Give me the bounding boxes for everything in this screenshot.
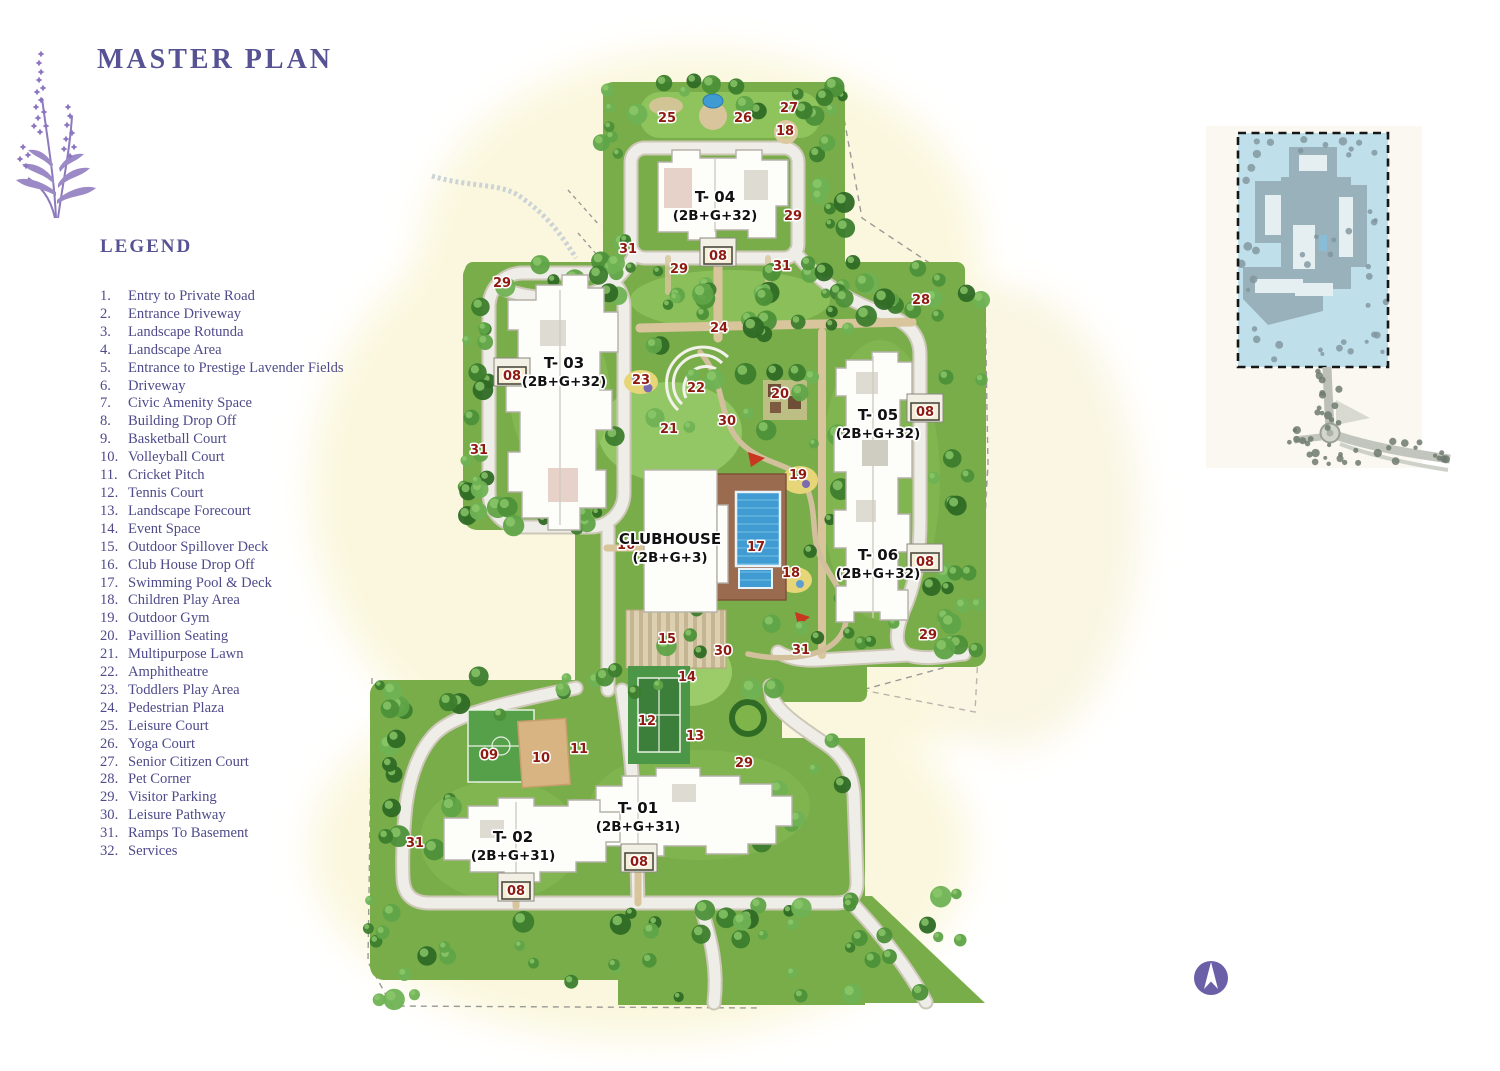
tree (613, 148, 624, 159)
north-arrow-icon (1194, 961, 1228, 995)
tree-highlight (765, 265, 773, 273)
tree-highlight (481, 472, 488, 479)
tree-highlight (671, 294, 676, 299)
tree (608, 959, 620, 971)
tree-highlight (473, 477, 477, 481)
tree-highlight (593, 509, 598, 514)
tree-highlight (963, 470, 969, 476)
tree-highlight (472, 504, 480, 512)
tree-highlight (530, 959, 535, 964)
tree (643, 923, 659, 939)
tree-highlight (844, 986, 853, 995)
tree-highlight (960, 286, 968, 294)
map-marker-19: 19 (789, 468, 807, 483)
map-marker-31: 31 (773, 259, 791, 274)
tree (696, 307, 709, 320)
legend-item: 8.Building Drop Off (100, 413, 400, 431)
map-marker-08: 08 (916, 405, 934, 420)
label-T-06: T- 06 (858, 546, 898, 564)
tree (742, 408, 753, 419)
tree (961, 565, 977, 581)
tree-highlight (813, 179, 822, 188)
tree (373, 993, 386, 1006)
tree (791, 898, 812, 919)
tree (954, 934, 967, 947)
tree (864, 952, 880, 968)
tree-highlight (957, 599, 964, 606)
tree-highlight (612, 916, 622, 926)
tree (589, 266, 608, 285)
inset-road-tree (1319, 390, 1325, 396)
legend-item: 32.Services (100, 843, 400, 861)
tree-highlight (792, 813, 799, 820)
tree (910, 260, 927, 277)
tree (733, 912, 751, 930)
tree-highlight (444, 799, 453, 808)
tree (825, 219, 835, 229)
tree-highlight (858, 275, 866, 283)
tree-highlight (833, 480, 843, 490)
label-spec: (2B+G+31) (596, 819, 681, 835)
tree-highlight (730, 80, 737, 87)
tree (826, 104, 837, 115)
inset-tree (1304, 261, 1311, 268)
tree-highlight (680, 87, 685, 92)
tree (608, 663, 622, 677)
inset-road-tree (1308, 436, 1314, 442)
legend-item: 21.Multipurpose Lawn (100, 646, 400, 664)
tree (846, 255, 861, 270)
inset-road-tree (1307, 452, 1313, 458)
legend-item: 22.Amphitheatre (100, 664, 400, 682)
tree (955, 598, 970, 613)
tree (628, 685, 642, 699)
tree (794, 989, 807, 1002)
tree (605, 103, 615, 113)
tree (809, 764, 820, 775)
tree-highlight (500, 499, 509, 508)
tree-highlight (473, 300, 481, 308)
tree (922, 577, 941, 596)
tree-highlight (371, 936, 377, 942)
tree-highlight (933, 888, 943, 898)
inset-tree (1253, 150, 1261, 158)
legend-item: 17.Swimming Pool & Deck (100, 575, 400, 593)
tree-highlight (610, 664, 616, 670)
tree (811, 189, 827, 205)
inset-tree (1271, 356, 1277, 362)
tree-highlight (846, 943, 851, 948)
inset-tree (1250, 275, 1258, 283)
tree (843, 898, 856, 911)
tree (441, 797, 462, 818)
tree-highlight (420, 948, 429, 957)
tree-highlight (807, 371, 813, 377)
tree-highlight (853, 932, 860, 939)
tree-highlight (811, 148, 818, 155)
legend-item: 14.Event Space (100, 521, 400, 539)
map-marker-13: 13 (686, 729, 704, 744)
tree (787, 967, 798, 978)
tree-highlight (810, 765, 815, 770)
tree (686, 369, 699, 382)
label-spec: (2B+G+31) (471, 848, 556, 864)
inset-tree (1300, 252, 1306, 258)
inset-road-tree (1342, 460, 1347, 465)
tree-highlight (817, 264, 825, 272)
tree-highlight (821, 136, 829, 144)
tree-highlight (364, 924, 369, 929)
tree (656, 75, 673, 92)
map-marker-15: 15 (658, 632, 676, 647)
tree-highlight (827, 105, 832, 110)
inset-tree (1341, 339, 1347, 345)
tree-highlight (866, 637, 871, 642)
tree (497, 497, 517, 517)
map-marker-31: 31 (470, 443, 488, 458)
inset-tree (1314, 234, 1319, 239)
legend-item: 6.Driveway (100, 378, 400, 396)
tree-highlight (685, 630, 691, 636)
tree-highlight (385, 906, 393, 914)
tree (809, 439, 819, 449)
legend-item: 15.Outdoor Spillover Deck (100, 539, 400, 557)
map-marker-22: 22 (687, 381, 705, 396)
tree-highlight (936, 640, 946, 650)
tree-highlight (837, 291, 845, 299)
tree-highlight (738, 98, 746, 106)
tree-highlight (977, 375, 983, 381)
label-T-04: T- 04 (695, 188, 735, 206)
inset-road-tree (1374, 449, 1382, 457)
legend-item: 4.Landscape Area (100, 342, 400, 360)
inset-road-tree (1442, 455, 1450, 463)
legend-item: 12.Tennis Court (100, 485, 400, 503)
legend-item: 7.Civic Amenity Space (100, 395, 400, 413)
map-marker-30: 30 (718, 414, 736, 429)
map-marker-08: 08 (507, 884, 525, 899)
tree (694, 900, 715, 921)
inset-tree (1300, 136, 1307, 143)
tree-highlight (557, 683, 563, 689)
legend-item: 19.Outdoor Gym (100, 610, 400, 628)
tree-highlight (934, 933, 939, 938)
tree-highlight (648, 410, 657, 419)
tree (398, 968, 412, 982)
legend-item: 23.Toddlers Play Area (100, 682, 400, 700)
tree (932, 273, 946, 287)
tree (819, 135, 836, 152)
tree-highlight (956, 935, 962, 941)
tree (601, 83, 614, 96)
tree-highlight (949, 498, 958, 507)
label-spec: (2B+G+3) (632, 550, 707, 566)
tree-highlight (471, 668, 480, 677)
tree (472, 476, 482, 486)
map-marker-25: 25 (658, 111, 676, 126)
lavender-sprig-icon (10, 36, 102, 226)
inset-tree (1327, 251, 1333, 257)
tree (409, 989, 420, 1000)
tree (919, 917, 936, 934)
tree-highlight (627, 263, 632, 268)
inset-tree (1267, 139, 1274, 146)
tree-highlight (785, 906, 790, 911)
map-marker-29: 29 (784, 209, 802, 224)
inset-road-tree (1413, 446, 1417, 450)
tree (494, 708, 507, 721)
map-marker-11: 11 (570, 742, 588, 757)
tree (468, 363, 486, 381)
tree-highlight (506, 517, 516, 527)
tree (606, 131, 618, 143)
tree (473, 380, 494, 401)
tree-highlight (759, 931, 763, 935)
tree (439, 693, 457, 711)
label-spec: (2B+G+32) (836, 426, 921, 442)
inset-tree (1366, 303, 1371, 308)
tree-highlight (933, 311, 938, 316)
tree (512, 911, 534, 933)
tree-highlight (934, 274, 940, 280)
map-marker-30: 30 (714, 644, 732, 659)
tree-highlight (654, 267, 659, 272)
inset-tree (1331, 237, 1336, 242)
tree-highlight (594, 253, 603, 262)
tree-highlight (929, 473, 935, 479)
tree (365, 896, 375, 906)
tree-highlight (627, 909, 632, 914)
legend-item: 1.Entry to Private Road (100, 288, 400, 306)
inset-road-tree (1386, 445, 1391, 450)
tree (592, 508, 602, 518)
inset-road-tree (1329, 417, 1334, 422)
tree-highlight (650, 917, 656, 923)
tree-highlight (515, 913, 525, 923)
map-marker-26: 26 (734, 111, 752, 126)
inset-tree (1365, 340, 1369, 344)
tree-highlight (827, 79, 836, 88)
inset-tree (1323, 142, 1329, 148)
tree (758, 930, 768, 940)
tree-highlight (847, 256, 854, 263)
tree (764, 678, 784, 698)
tree (825, 733, 840, 748)
tree-highlight (765, 616, 773, 624)
tree-highlight (374, 995, 380, 1001)
tree-highlight (607, 132, 612, 137)
map-marker-31: 31 (406, 836, 424, 851)
tree (653, 266, 663, 276)
tree (882, 949, 897, 964)
inset-road-tree (1392, 457, 1400, 465)
tree (787, 918, 799, 930)
legend-item: 13.Landscape Forecourt (100, 503, 400, 521)
label-spec: (2B+G+32) (836, 566, 921, 582)
tree (376, 926, 390, 940)
map-marker-31: 31 (619, 242, 637, 257)
tree-highlight (752, 899, 759, 906)
inset-tree (1336, 345, 1343, 352)
tree (947, 496, 967, 516)
page-title: MASTER PLAN (97, 44, 333, 76)
tree (811, 631, 824, 644)
tree-highlight (766, 680, 775, 689)
tree-highlight (745, 319, 755, 329)
tree-highlight (440, 942, 445, 947)
tree-highlight (836, 194, 845, 203)
tree (626, 104, 647, 125)
tree-highlight (943, 615, 952, 624)
tree-highlight (844, 628, 849, 633)
tree (679, 86, 690, 97)
inset-road-tree (1389, 438, 1396, 445)
tree-highlight (516, 941, 521, 946)
tree-highlight (803, 258, 809, 264)
tree (940, 613, 961, 634)
legend-item: 18.Children Play Area (100, 592, 400, 610)
tree (843, 627, 854, 638)
label-spec: (2B+G+32) (673, 208, 758, 224)
tree (933, 932, 943, 942)
tree (766, 364, 783, 381)
map-marker-17: 17 (747, 540, 765, 555)
tree-highlight (688, 370, 694, 376)
tree (930, 886, 952, 908)
tree (702, 75, 721, 94)
inset-tree (1345, 228, 1352, 235)
tree-highlight (461, 484, 469, 492)
inset-tree (1380, 350, 1384, 354)
tree (788, 364, 806, 382)
map-marker-18: 18 (782, 566, 800, 581)
legend-item: 9.Basketball Court (100, 431, 400, 449)
tree-highlight (974, 293, 982, 301)
tree (424, 839, 446, 861)
tree-highlight (630, 687, 636, 693)
tree (462, 335, 472, 345)
tree-highlight (495, 710, 501, 716)
tree (646, 337, 662, 353)
tree-highlight (399, 969, 405, 975)
map-marker-14: 14 (678, 670, 696, 685)
tree-highlight (464, 336, 469, 341)
tree-highlight (737, 365, 747, 375)
tree-highlight (963, 567, 970, 574)
tree-highlight (876, 290, 886, 300)
inset-road-tree (1436, 456, 1441, 461)
tree-highlight (884, 951, 891, 958)
map-marker-29: 29 (670, 262, 688, 277)
tree-highlight (796, 990, 802, 996)
tree (816, 89, 833, 106)
tree (805, 370, 819, 384)
tree-highlight (533, 257, 542, 266)
tree-highlight (743, 409, 748, 414)
tree (642, 953, 657, 968)
inset-tree (1252, 247, 1260, 255)
tree (842, 323, 854, 335)
legend-list: 1.Entry to Private Road2.Entrance Drivew… (100, 288, 400, 861)
tree-highlight (386, 991, 396, 1001)
legend-item: 31.Ramps To Basement (100, 825, 400, 843)
tree (464, 410, 480, 426)
tree-highlight (836, 778, 844, 786)
tree-highlight (479, 323, 484, 328)
tree (530, 255, 549, 274)
inset-road-tree (1299, 437, 1306, 444)
tree (928, 472, 940, 484)
inset-road-tree (1355, 460, 1361, 466)
tree (971, 598, 984, 611)
tree-highlight (605, 123, 610, 128)
tree-highlight (609, 256, 617, 264)
tree (794, 621, 808, 635)
tree (792, 88, 804, 100)
map-marker-21: 21 (660, 422, 678, 437)
tree (417, 946, 436, 965)
tree (383, 989, 404, 1010)
map-marker-23: 23 (632, 373, 650, 388)
legend-item: 25.Leisure Court (100, 718, 400, 736)
tree (683, 421, 695, 433)
tree-highlight (788, 919, 793, 924)
tree-highlight (648, 339, 655, 346)
inset-road-tree (1320, 411, 1325, 416)
tree-highlight (697, 902, 706, 911)
tree-highlight (426, 841, 436, 851)
tree-highlight (793, 386, 801, 394)
tree-highlight (410, 990, 415, 995)
tree-highlight (688, 75, 695, 82)
tree (741, 679, 762, 700)
tree-highlight (675, 993, 680, 998)
tree (821, 289, 831, 299)
tree-highlight (794, 900, 803, 909)
tree (912, 984, 929, 1001)
tree-highlight (797, 103, 805, 111)
tree (855, 305, 876, 326)
tree (755, 288, 773, 306)
tree-highlight (685, 422, 690, 427)
tree (728, 78, 744, 94)
inset-tree (1339, 137, 1347, 145)
inset-road-tree (1325, 425, 1331, 431)
tree-highlight (695, 286, 705, 296)
tree (932, 310, 944, 322)
tree (947, 565, 962, 580)
tree (975, 373, 987, 385)
inset-road-tree (1293, 426, 1301, 434)
tree-highlight (793, 316, 800, 323)
label-CLUBHOUSE: CLUBHOUSE (619, 530, 721, 548)
tree-highlight (595, 136, 603, 144)
legend-item: 16.Club House Drop Off (100, 557, 400, 575)
inset-road-tree (1401, 439, 1409, 447)
tree-highlight (826, 735, 833, 742)
map-marker-18: 18 (776, 124, 794, 139)
inset-tree (1371, 331, 1377, 337)
inset-road-tree (1327, 443, 1331, 447)
tree (503, 515, 524, 536)
tree (969, 643, 983, 657)
tree-highlight (791, 366, 799, 374)
tree-highlight (878, 929, 885, 936)
tree-highlight (603, 85, 609, 91)
inset-road-tree (1316, 372, 1323, 379)
tree (958, 285, 975, 302)
tree (939, 370, 954, 385)
